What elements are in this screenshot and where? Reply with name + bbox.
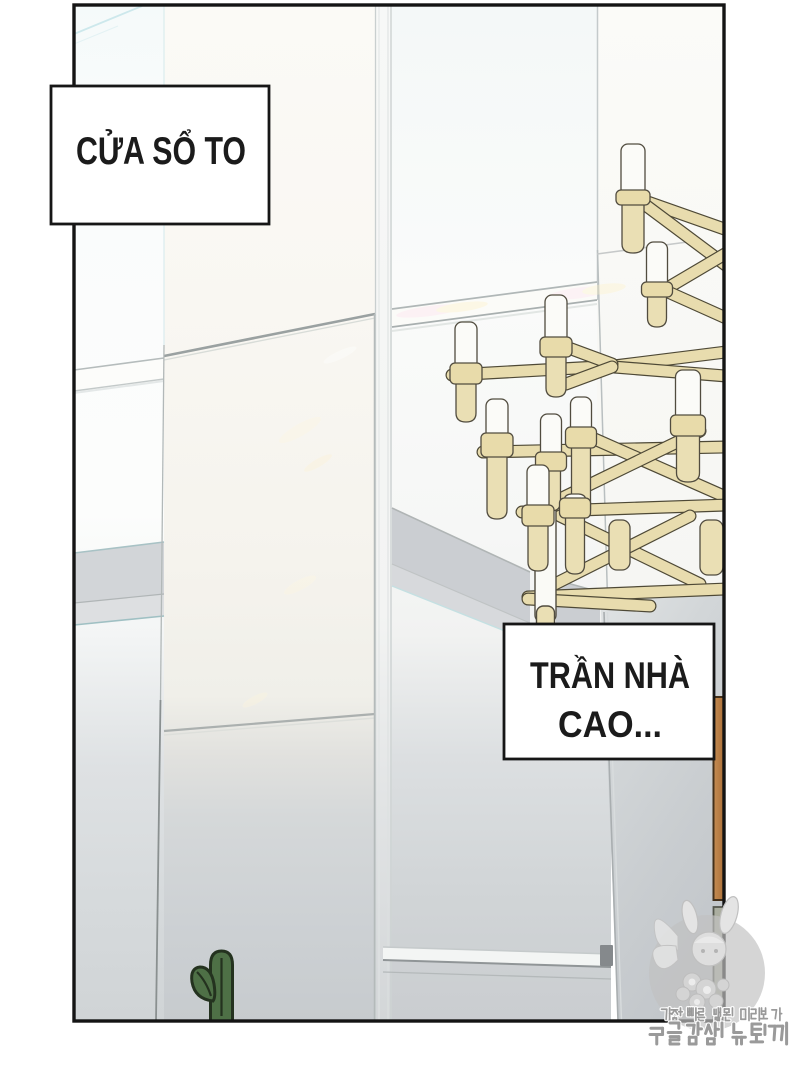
svg-text:CỬA SỔ TO: CỬA SỔ TO <box>76 128 246 173</box>
svg-text:CAO...: CAO... <box>558 704 662 745</box>
svg-text:TRẦN NHÀ: TRẦN NHÀ <box>530 655 690 696</box>
